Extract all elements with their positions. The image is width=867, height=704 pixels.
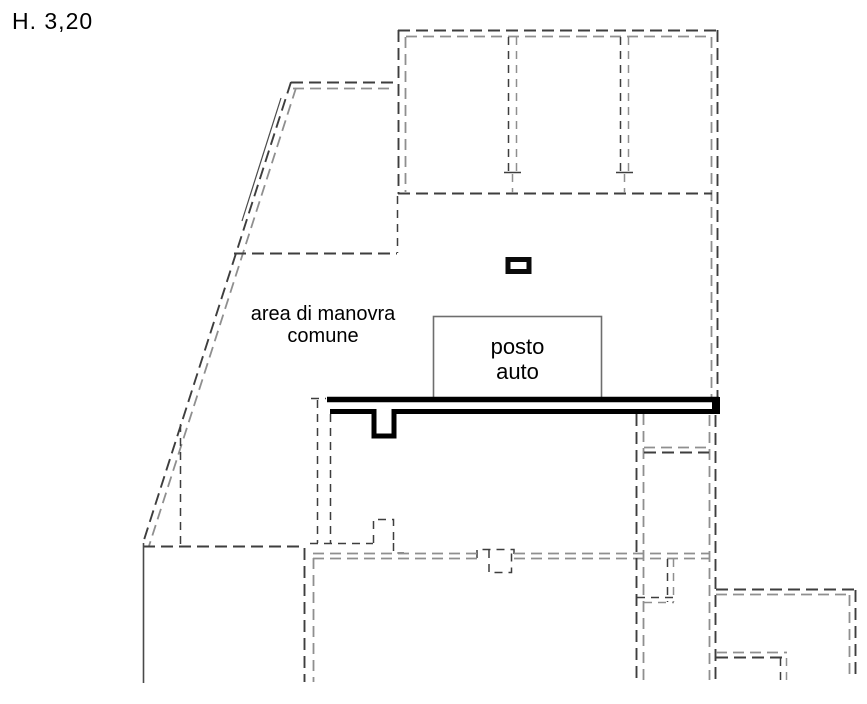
slab-edge-right-cap — [712, 397, 720, 414]
maneuvering-area-label: area di manovra comune — [212, 303, 434, 347]
wall-step — [394, 543, 405, 553]
lower-building-walls — [305, 399, 515, 683]
bottom-right-walls — [716, 590, 856, 681]
right-wing-walls — [637, 414, 716, 680]
door-tab — [489, 550, 512, 573]
wall-bump — [374, 520, 394, 544]
parking-spot-label-line2: auto — [433, 359, 602, 384]
parking-spot-label-line1: posto — [433, 334, 602, 359]
maneuvering-area-label-line1: area di manovra — [212, 303, 434, 325]
pillar — [508, 260, 529, 272]
boundary-diagonal-solid — [242, 98, 281, 221]
maneuvering-area-label-line2: comune — [212, 325, 434, 347]
door-bump-top — [477, 550, 514, 559]
slab-edge-thick-lines — [327, 397, 720, 436]
maneuvering-area-boundary — [143, 82, 398, 683]
floor-plan-canvas: H. 3,20 area di manovra comune posto aut… — [0, 0, 867, 704]
parking-spot-label: posto auto — [433, 334, 602, 384]
ceiling-height-label: H. 3,20 — [12, 8, 93, 35]
slab-edge-lower-with-notch — [330, 412, 713, 437]
